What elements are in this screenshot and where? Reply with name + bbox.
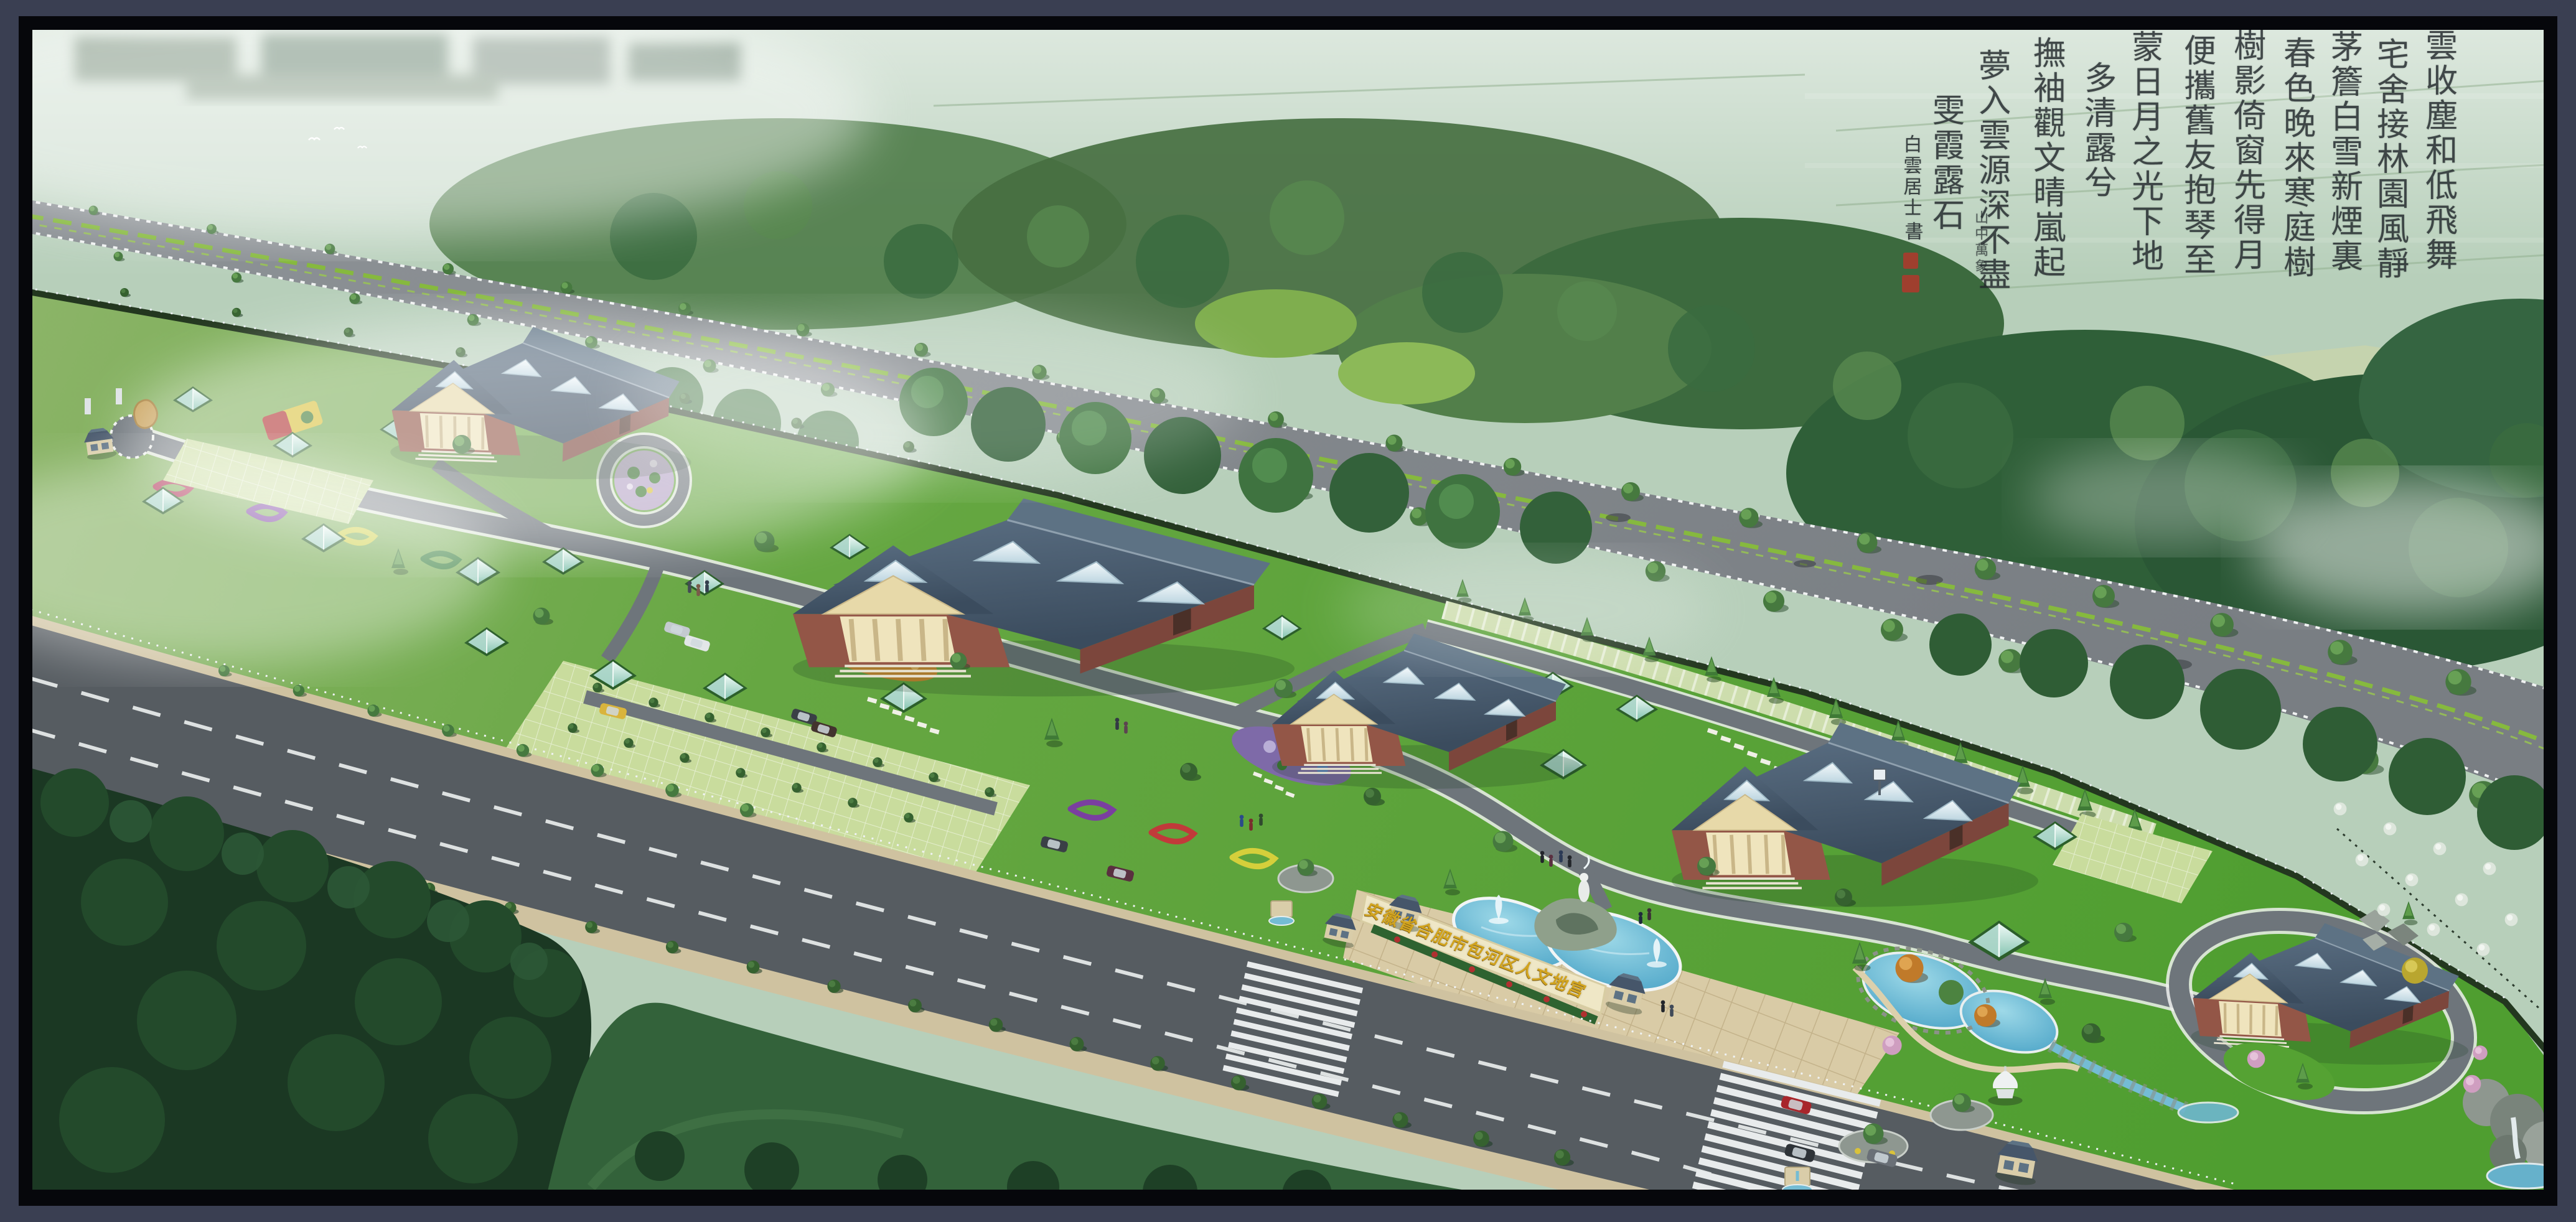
bamboo-grove	[1338, 342, 1475, 404]
small-pond	[2178, 1103, 2238, 1122]
gate-pillar	[116, 388, 122, 404]
rendering-canvas	[0, 0, 2576, 1222]
gate-pillar	[85, 398, 91, 414]
architectural-rendering: 雲收塵和低飛舞 宅舍接林園風靜 茅簷白雪新煙裏 春色晚來寒庭樹 樹影倚窗先得月 …	[0, 0, 2576, 1222]
bamboo-grove	[1195, 289, 1357, 358]
